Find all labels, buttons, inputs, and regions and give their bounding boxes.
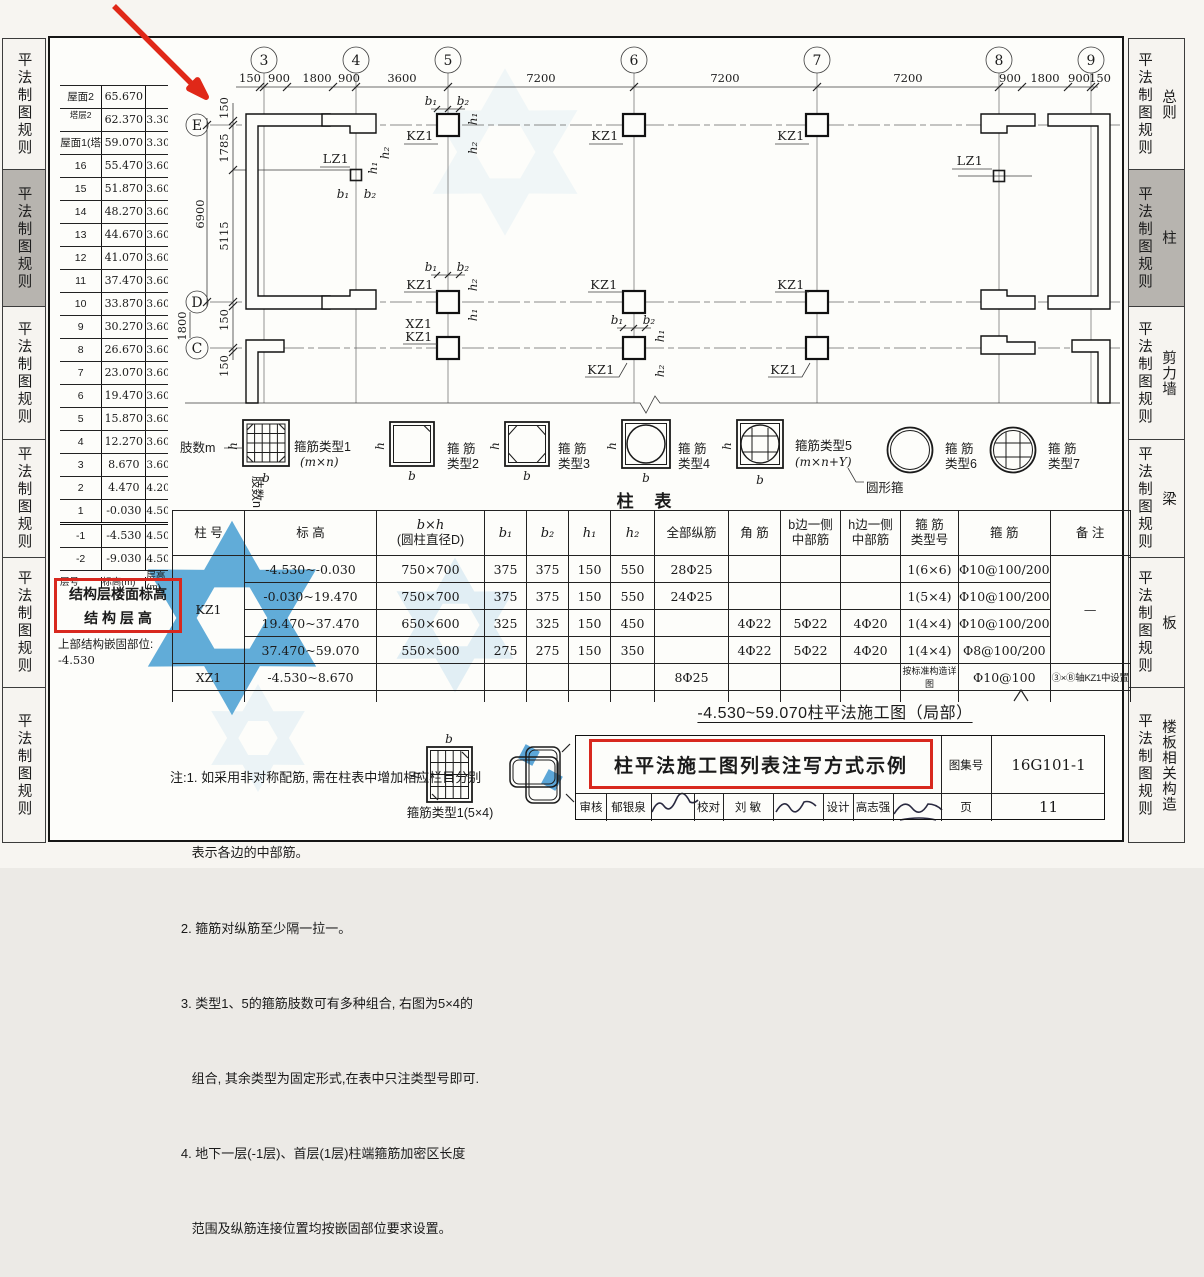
floor-number: 5 — [60, 408, 101, 430]
left-tab-label: 平法制图规则 — [14, 52, 35, 157]
floor-level-row: 2 4.470 4.20 — [60, 477, 168, 500]
floor-number: 7 — [60, 362, 101, 384]
right-tab-item: 平法制图规则 板 — [1128, 558, 1185, 688]
floor-level-row: 11 37.470 3.60 — [60, 270, 168, 293]
floor-elevation: 12.270 — [101, 431, 146, 453]
sheet-title: 柱平法施工图列表注写方式示例 — [589, 739, 933, 789]
floor-elevation: -4.530 — [101, 525, 146, 547]
floor-level-row: 15 51.870 3.60 — [60, 178, 168, 201]
floor-number: 塔层2 — [60, 109, 101, 131]
left-tab-label: 平法制图规则 — [14, 446, 35, 551]
right-tab-item: 平法制图规则 楼板相关构造 — [1128, 688, 1185, 843]
figure-caption: -4.530~59.070柱平法施工图（局部） — [640, 699, 1030, 723]
right-tab-label: 平法制图规则 — [1134, 321, 1155, 426]
floor-elevation: 30.270 — [101, 316, 146, 338]
right-tab-label: 平法制图规则 — [1134, 713, 1155, 818]
floor-height: 3.60 — [146, 270, 168, 292]
floor-level-row: 8 26.670 3.60 — [60, 339, 168, 362]
floor-level-row: 9 30.270 3.60 — [60, 316, 168, 339]
floor-level-row: 5 15.870 3.60 — [60, 408, 168, 431]
header-stirrup: 箍 筋 — [959, 511, 1051, 556]
floor-level-row: 屋面1(塔层1) 59.070 3.30 — [60, 132, 168, 155]
note-line: 2. 箍筋对纵筋至少隔一拉一。 — [170, 920, 481, 939]
floor-height: 3.60 — [146, 454, 168, 476]
floor-height: 3.60 — [146, 247, 168, 269]
floor-level-row: 10 33.870 3.60 — [60, 293, 168, 316]
left-tab-item: 平法制图规则 — [2, 688, 46, 843]
kz1-row-1: KZ1 -4.530~-0.030 750×700 375 375 150 55… — [173, 556, 1131, 583]
floor-level-row: -2 -9.030 4.50 — [60, 548, 168, 571]
left-tab-label: 平法制图规则 — [14, 713, 35, 818]
floor-elevation: 62.370 — [101, 109, 146, 131]
floor-height: 3.60 — [146, 385, 168, 407]
header-corner-bars: 角 筋 — [729, 511, 781, 556]
floor-level-row: 14 48.270 3.60 — [60, 201, 168, 224]
right-tab-item: 平法制图规则 梁 — [1128, 440, 1185, 558]
left-tab-item: 平法制图规则 — [2, 558, 46, 688]
floor-elevation: 15.870 — [101, 408, 146, 430]
left-tab-item: 平法制图规则 — [2, 307, 46, 440]
right-tab-category: 剪力墙 — [1158, 350, 1179, 397]
column-table-title: 柱 表 — [598, 487, 698, 512]
note-line: 4. 地下一层(-1层)、首层(1层)柱端箍筋加密区长度 — [170, 1145, 481, 1164]
remark-dash: — — [1050, 556, 1130, 664]
floor-number: 16 — [60, 155, 101, 177]
note-line: 组合, 其余类型为固定形式,在表中只注类型号即可. — [170, 1070, 481, 1089]
floor-height: 3.60 — [146, 339, 168, 361]
xz1-row: XZ1 -4.530~8.670 8Φ25 按标准构造详图 Φ10@100 ③×… — [173, 664, 1131, 691]
elevation-cell: -4.530~-0.030 — [245, 556, 377, 583]
floor-height: 3.60 — [146, 431, 168, 453]
right-tab-column: 平法制图规则 总则 平法制图规则 柱 平法制图规则 剪力墙 平法制图规则 梁 平… — [1128, 38, 1185, 843]
header-elevation: 标 高 — [245, 511, 377, 556]
embedment-label: 上部结构嵌固部位: — [58, 638, 188, 653]
reviewer-name: 郁银泉 — [606, 793, 651, 821]
kz1-row-4: 37.470~59.070 550×500 275 275 150 350 4Φ… — [173, 637, 1131, 664]
right-tab-item: 平法制图规则 柱 — [1128, 170, 1185, 307]
floor-number: 11 — [60, 270, 101, 292]
floor-number: 4 — [60, 431, 101, 453]
floor-level-row: 塔层2 62.370 3.30 — [60, 109, 168, 132]
left-tab-label: 平法制图规则 — [14, 570, 35, 675]
note-line: 范围及纵筋连接位置均按嵌固部位要求设置。 — [170, 1220, 481, 1239]
note-line: 3. 类型1、5的箍筋肢数可有多种组合, 右图为5×4的 — [170, 995, 481, 1014]
floor-number: 12 — [60, 247, 101, 269]
floor-height: 3.60 — [146, 178, 168, 200]
proofer-name: 刘 敏 — [723, 793, 773, 821]
note-line: 表示各边的中部筋。 — [170, 844, 481, 863]
floor-elevation: 23.070 — [101, 362, 146, 384]
header-b2: b₂ — [527, 511, 569, 556]
xz1-remark: ③×Ⓑ轴KZ1中设置 — [1050, 664, 1130, 691]
left-tab-label: 平法制图规则 — [14, 321, 35, 426]
embedment-value: -4.530 — [58, 653, 188, 668]
header-all-bars: 全部纵筋 — [655, 511, 729, 556]
floor-number: 10 — [60, 293, 101, 315]
general-notes: 注:1. 如采用非对称配筋, 需在柱表中增加相应栏目分别 表示各边的中部筋。 2… — [170, 694, 481, 1277]
header-h2: h₂ — [611, 511, 655, 556]
atlas-number-label: 图集号 — [941, 736, 991, 793]
floor-level-row: 屋面2 65.670 — [60, 86, 168, 109]
left-tab-item: 平法制图规则 — [2, 440, 46, 558]
header-b-side-bars: b边一侧中部筋 — [781, 511, 841, 556]
floor-level-row: -1 -4.530 4.50 — [60, 525, 168, 548]
left-tab-column: 平法制图规则 平法制图规则 平法制图规则 平法制图规则 平法制图规则 平法制图规… — [2, 38, 46, 843]
column-id-xz1: XZ1 — [173, 664, 245, 691]
right-tab-label: 平法制图规则 — [1134, 570, 1155, 675]
right-tab-label: 平法制图规则 — [1134, 186, 1155, 291]
right-tab-item: 平法制图规则 剪力墙 — [1128, 307, 1185, 440]
floor-level-row: 4 12.270 3.60 — [60, 431, 168, 454]
floor-elevation: -0.030 — [101, 500, 146, 522]
designer-name: 高志强 — [853, 793, 893, 821]
floor-number: 13 — [60, 224, 101, 246]
floor-number: 2 — [60, 477, 101, 499]
floor-level-row: 16 55.470 3.60 — [60, 155, 168, 178]
right-tab-category: 总则 — [1158, 89, 1179, 120]
floor-elevation: 55.470 — [101, 155, 146, 177]
design-label: 设计 — [823, 793, 853, 821]
floor-elevation: 44.670 — [101, 224, 146, 246]
table-header-row: 柱 号 标 高 b×h(圆柱直径D) b₁ b₂ h₁ h₂ 全部纵筋 角 筋 … — [173, 511, 1131, 556]
floor-height: 3.60 — [146, 224, 168, 246]
standard-detail-note: 按标准构造详图 — [901, 664, 959, 691]
column-id-kz1: KZ1 — [173, 556, 245, 664]
floor-height: 3.60 — [146, 293, 168, 315]
header-bxh: b×h(圆柱直径D) — [377, 511, 485, 556]
floor-elevation: 4.470 — [101, 477, 146, 499]
floor-height: 3.30 — [146, 109, 168, 131]
title-block: 柱平法施工图列表注写方式示例 图集号 16G101-1 审核 郁银泉 校对 刘 … — [575, 735, 1105, 820]
floor-height: 3.60 — [146, 201, 168, 223]
floor-number: 3 — [60, 454, 101, 476]
floor-height: 3.30 — [146, 132, 168, 154]
floor-level-row: 6 19.470 3.60 — [60, 385, 168, 408]
floor-height: 4.20 — [146, 477, 168, 499]
note-box-line1: 结构层楼面标高 — [57, 582, 179, 606]
floor-height: 4.50 — [146, 548, 168, 570]
column-schedule-table: 柱 号 标 高 b×h(圆柱直径D) b₁ b₂ h₁ h₂ 全部纵筋 角 筋 … — [172, 510, 1131, 702]
kz1-row-3: 19.470~37.470 650×600 325 325 150 450 4Φ… — [173, 610, 1131, 637]
proof-label: 校对 — [694, 793, 723, 821]
page-number: 11 — [991, 793, 1106, 821]
floor-level-table: 屋面2 65.670 塔层2 62.370 3.30 屋面1(塔层1) 59.0… — [60, 85, 168, 593]
right-tab-label: 平法制图规则 — [1134, 446, 1155, 551]
floor-elevation: 51.870 — [101, 178, 146, 200]
floor-elevation: 41.070 — [101, 247, 146, 269]
floor-height: 4.50 — [146, 525, 168, 547]
bxh-cell: 750×700 — [377, 556, 485, 583]
kz1-row-2: -0.030~19.470 750×700 375 375 150 550 24… — [173, 583, 1131, 610]
floor-elevation: 8.670 — [101, 454, 146, 476]
floor-number: 1 — [60, 500, 101, 522]
floor-elevation: 26.670 — [101, 339, 146, 361]
floor-number: -1 — [60, 525, 101, 547]
floor-number: 屋面2 — [60, 86, 101, 108]
floor-number: 15 — [60, 178, 101, 200]
left-tab-item: 平法制图规则 — [2, 38, 46, 170]
floor-level-row: 1 -0.030 4.50 — [60, 500, 168, 525]
header-h1: h₁ — [569, 511, 611, 556]
right-tab-item: 平法制图规则 总则 — [1128, 38, 1185, 170]
header-b1: b₁ — [485, 511, 527, 556]
floor-number: 8 — [60, 339, 101, 361]
floor-number: 屋面1(塔层1) — [60, 132, 101, 154]
floor-elevation: 59.070 — [101, 132, 146, 154]
floor-elevation: -9.030 — [101, 548, 146, 570]
floor-height: 3.60 — [146, 155, 168, 177]
header-h-side-bars: h边一侧中部筋 — [841, 511, 901, 556]
floor-height — [146, 86, 168, 108]
header-remark: 备 注 — [1050, 511, 1130, 556]
right-tab-category: 柱 — [1158, 230, 1179, 246]
note-box-line2: 结 构 层 高 — [57, 606, 179, 630]
right-tab-category: 板 — [1158, 615, 1179, 631]
floor-elevation: 37.470 — [101, 270, 146, 292]
floor-level-row: 12 41.070 3.60 — [60, 247, 168, 270]
floor-number: 6 — [60, 385, 101, 407]
note-line: 注:1. 如采用非对称配筋, 需在柱表中增加相应栏目分别 — [170, 769, 481, 788]
left-tab-item: 平法制图规则 — [2, 170, 46, 307]
floor-elevation: 48.270 — [101, 201, 146, 223]
floor-height: 3.60 — [146, 316, 168, 338]
left-tab-label: 平法制图规则 — [14, 186, 35, 291]
embedment-note: 上部结构嵌固部位: -4.530 — [58, 638, 188, 668]
floor-height: 3.60 — [146, 362, 168, 384]
floor-number: 14 — [60, 201, 101, 223]
header-column-id: 柱 号 — [173, 511, 245, 556]
right-tab-category: 楼板相关构造 — [1158, 719, 1179, 812]
right-tab-label: 平法制图规则 — [1134, 52, 1155, 157]
review-label: 审核 — [576, 793, 606, 821]
floor-elevation: 33.870 — [101, 293, 146, 315]
structure-elevation-note-box: 结构层楼面标高 结 构 层 高 — [54, 578, 182, 633]
floor-elevation: 19.470 — [101, 385, 146, 407]
header-stirrup-type: 箍 筋类型号 — [901, 511, 959, 556]
atlas-number-value: 16G101-1 — [991, 736, 1106, 793]
floor-level-row: 3 8.670 3.60 — [60, 454, 168, 477]
floor-level-row: 13 44.670 3.60 — [60, 224, 168, 247]
floor-height: 3.60 — [146, 408, 168, 430]
floor-height: 4.50 — [146, 500, 168, 522]
floor-number: -2 — [60, 548, 101, 570]
page-label: 页 — [941, 793, 991, 821]
right-tab-category: 梁 — [1158, 491, 1179, 507]
floor-elevation: 65.670 — [101, 86, 146, 108]
floor-number: 9 — [60, 316, 101, 338]
floor-level-row: 7 23.070 3.60 — [60, 362, 168, 385]
